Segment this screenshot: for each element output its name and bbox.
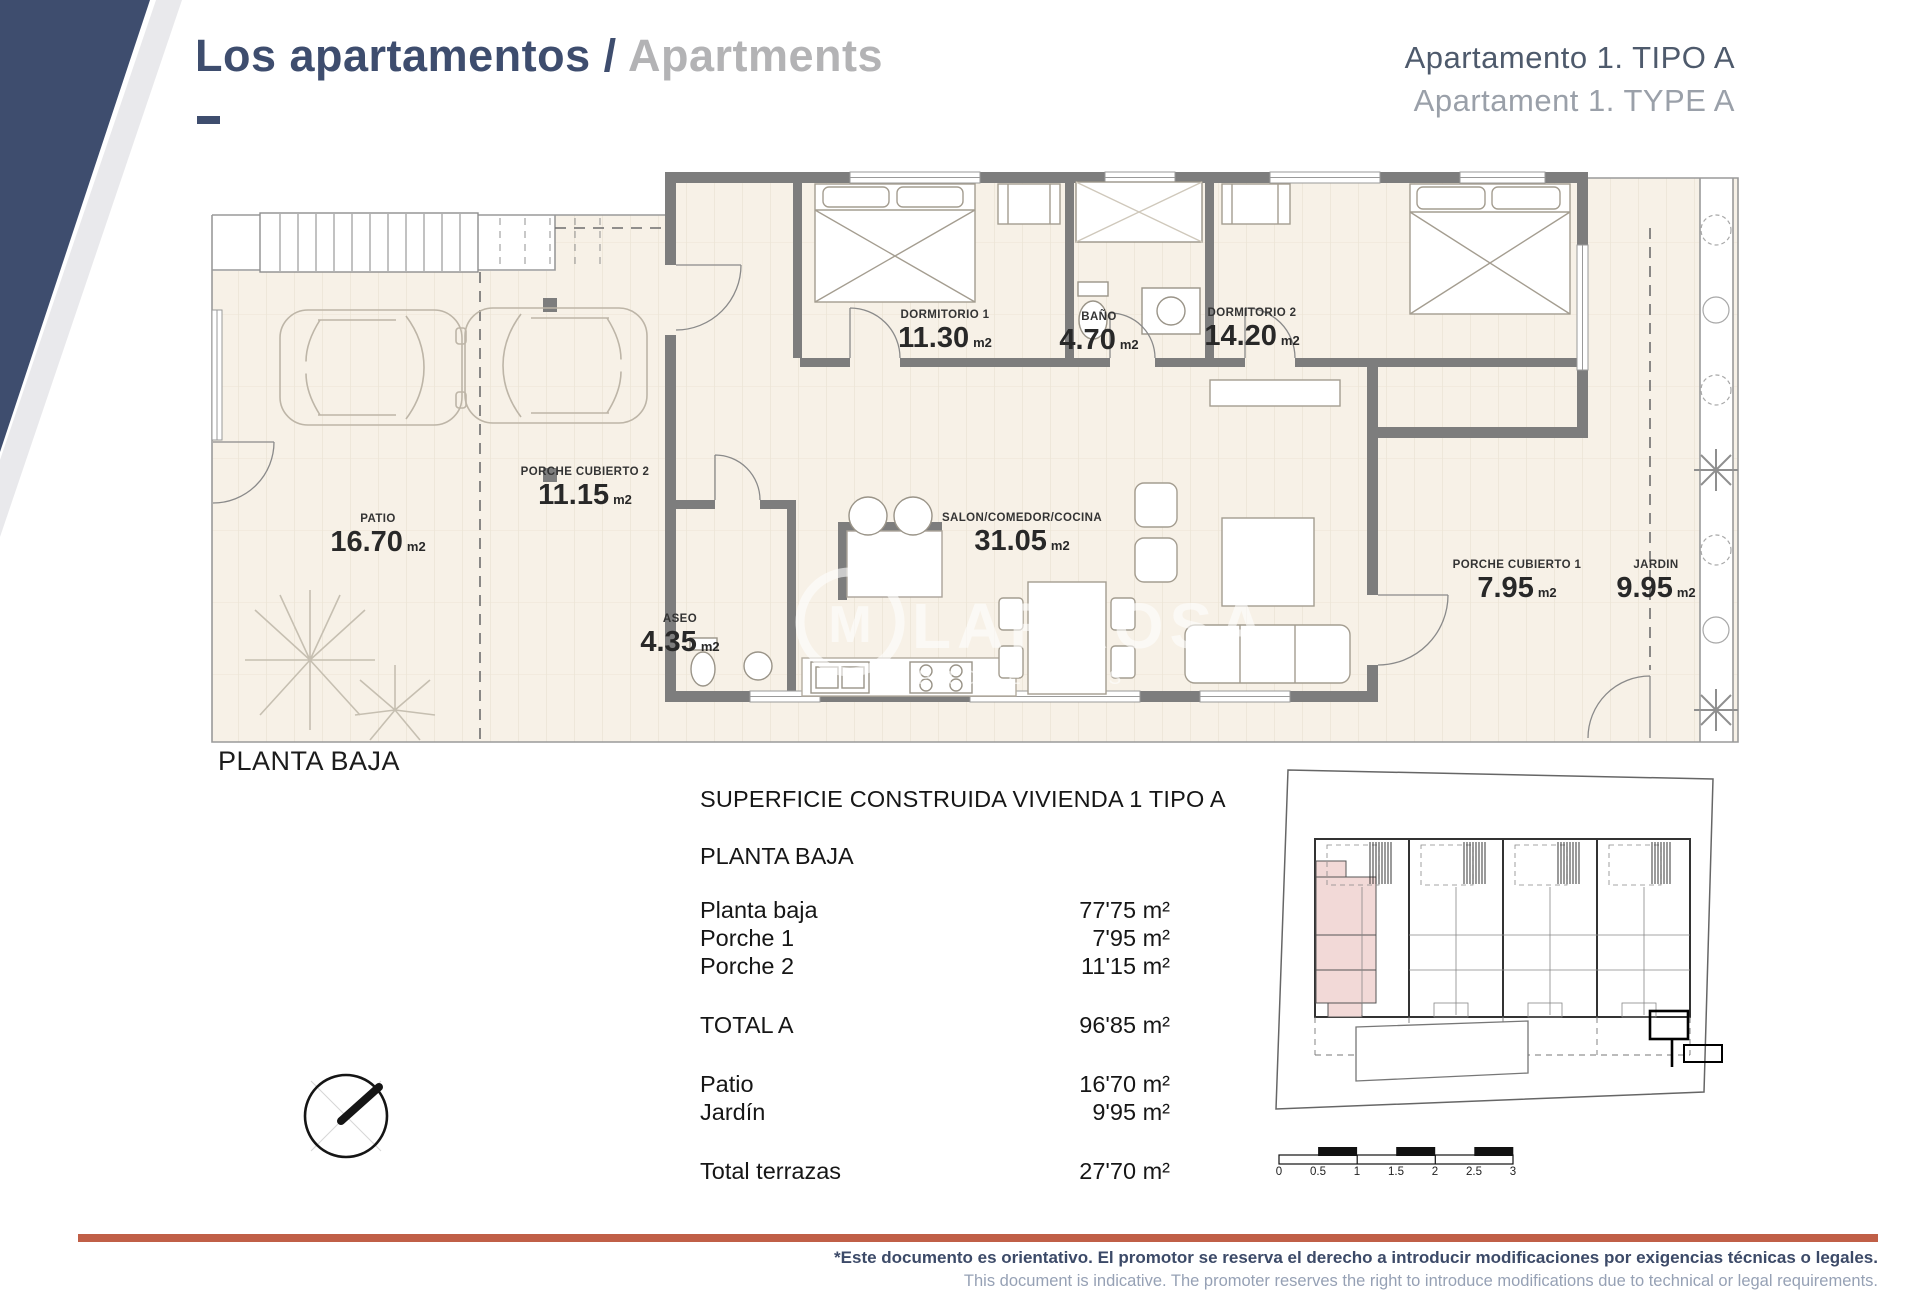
scale-tick: 2.5 — [1466, 1166, 1482, 1178]
scale-tick: 0.5 — [1310, 1166, 1326, 1178]
surface-table-title: SUPERFICIE CONSTRUIDA VIVIENDA 1 TIPO A — [700, 786, 1170, 813]
surface-row-label: TOTAL A — [700, 1012, 794, 1038]
pool-outline — [1356, 1021, 1528, 1081]
surface-row: Porche 17'95 m² — [700, 924, 1170, 952]
surface-row: Total terrazas27'70 m² — [700, 1157, 1170, 1185]
floorplan-drawing: M LARROSA PROPERTIES PATIO16.70m2PORCHE … — [210, 170, 1740, 745]
apartment-heading: Apartamento 1. TIPO A Apartament 1. TYPE… — [1405, 36, 1735, 122]
page-title: Los apartamentos / Apartments — [195, 30, 883, 82]
surface-row: Jardín9'95 m² — [700, 1098, 1170, 1126]
floorplan-caption: PLANTA BAJA — [218, 746, 400, 777]
surface-row-label: Total terrazas — [700, 1158, 841, 1184]
surface-table-subtitle: PLANTA BAJA — [700, 843, 1170, 870]
footer-disclaimer-es: *Este documento es orientativo. El promo… — [834, 1248, 1878, 1268]
room-name-label: BAÑO — [1081, 310, 1116, 323]
surface-row: Porche 211'15 m² — [700, 952, 1170, 980]
surface-row-label: Porche 1 — [700, 925, 794, 951]
page-title-secondary: Apartments — [628, 30, 883, 81]
surface-row: Planta baja77'75 m² — [700, 896, 1170, 924]
room-name-label: DORMITORIO 1 — [901, 309, 990, 321]
surface-row-label: Jardín — [700, 1099, 765, 1125]
room-name-label: DORMITORIO 2 — [1208, 307, 1297, 319]
scale-bar: 00.511.522.53 — [1278, 1146, 1518, 1188]
surface-row-label: Porche 2 — [700, 953, 794, 979]
surface-row-label: Patio — [700, 1071, 754, 1097]
surface-row-value: 77'75 m² — [1079, 896, 1170, 924]
surface-row: Patio16'70 m² — [700, 1070, 1170, 1098]
surface-table: SUPERFICIE CONSTRUIDA VIVIENDA 1 TIPO A … — [700, 786, 1170, 1185]
room-name-label: JARDIN — [1633, 559, 1678, 571]
scale-tick: 3 — [1510, 1166, 1516, 1178]
room-name-label: SALON/COMEDOR/COCINA — [942, 512, 1102, 524]
scale-tick: 2 — [1432, 1166, 1438, 1178]
footer-disclaimer-en: This document is indicative. The promote… — [834, 1272, 1878, 1291]
highlighted-unit — [1316, 861, 1376, 1017]
surface-row-value: 16'70 m² — [1079, 1070, 1170, 1098]
room-name-label: PATIO — [360, 513, 395, 525]
scale-tick: 0 — [1276, 1166, 1282, 1178]
surface-row-value: 96'85 m² — [1079, 1011, 1170, 1039]
scale-tick: 1 — [1354, 1166, 1360, 1178]
corner-decoration — [0, 0, 200, 560]
scale-tick: 1.5 — [1388, 1166, 1404, 1178]
watermark-sub: PROPERTIES — [918, 668, 1130, 689]
surface-table-rows: Planta baja77'75 m²Porche 17'95 m²Porche… — [700, 896, 1170, 1185]
surface-row-value: 11'15 m² — [1081, 952, 1170, 980]
room-name-label: PORCHE CUBIERTO 1 — [1453, 559, 1582, 571]
footer-rule — [78, 1234, 1878, 1242]
siteplan-minimap — [1270, 765, 1760, 1160]
compass-icon — [296, 1066, 396, 1166]
surface-row-label: Planta baja — [700, 897, 818, 923]
scale-bar-graphic — [1278, 1146, 1518, 1166]
watermark-name: LARROSA — [912, 590, 1270, 662]
room-name-label: ASEO — [663, 613, 697, 625]
apartment-heading-en: Apartament 1. TYPE A — [1405, 79, 1735, 122]
corner-navy-triangle — [0, 0, 150, 452]
title-dash — [197, 116, 220, 124]
surface-row-value: 9'95 m² — [1092, 1098, 1170, 1126]
surface-row-value: 27'70 m² — [1079, 1157, 1170, 1185]
scale-bar-ticks: 00.511.522.53 — [1278, 1166, 1513, 1182]
page-title-primary: Los apartamentos / — [195, 30, 617, 81]
svg-text:M: M — [828, 596, 871, 654]
apartment-heading-es: Apartamento 1. TIPO A — [1405, 36, 1735, 79]
surface-row: TOTAL A96'85 m² — [700, 1011, 1170, 1039]
footer-disclaimer: *Este documento es orientativo. El promo… — [834, 1248, 1878, 1291]
room-name-label: PORCHE CUBIERTO 2 — [521, 466, 650, 478]
surface-row-value: 7'95 m² — [1092, 924, 1170, 952]
